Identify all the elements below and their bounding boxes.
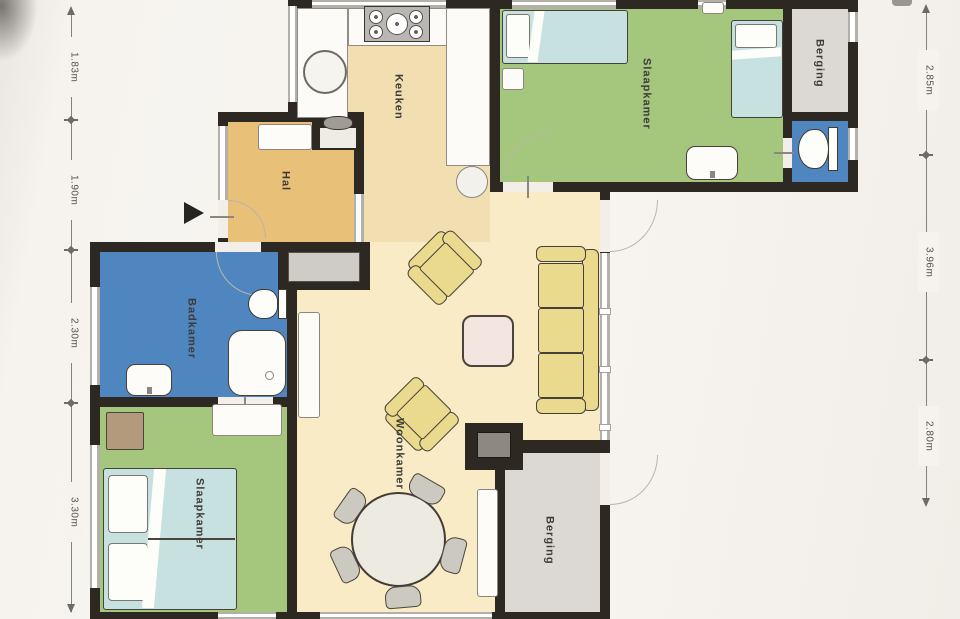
stove-icon [364,6,430,42]
dimension-label: 3.30m [63,482,84,542]
room-label-berging-bottom: Berging [536,510,562,570]
dimension-tick [922,151,930,159]
keuken-left-window [288,6,297,102]
room-label-woonkamer: Woonkamer [386,412,412,496]
slaapkamer-top-window [512,0,616,9]
shower-icon [228,330,286,396]
berging-bottom-door-gap [600,453,610,505]
dimension-arrow-icon [67,604,75,613]
toilet-bowl [248,289,278,319]
badkamer-door-gap [215,242,261,252]
door-arc-terrace [610,200,658,252]
coffee-table [462,315,514,367]
wall-hal-woonkamer [354,112,364,194]
dining-chair [384,584,422,609]
sofa-cushion [538,308,584,353]
door-threshold [527,176,529,198]
stove-burner-icon [409,10,423,24]
wardrobe [212,404,282,436]
entrance-arrow-icon [184,202,204,224]
entrance-door-gap [218,200,228,238]
bedroom-sink-icon [686,146,738,180]
nightstand [702,2,724,14]
dimension-label: 1.90m [63,160,84,220]
window-mullion [599,366,611,373]
stove-burner-icon [386,13,408,35]
toilet-icon [246,288,288,320]
dining-table [351,492,446,587]
dimension-arrow-icon [67,6,75,15]
nightstand [502,68,524,90]
kitchen-counter-right [446,8,490,166]
double-bed [103,468,237,610]
sideboard [298,312,320,418]
dimension-tick [67,399,75,407]
slaapkamer-bottom-window [90,445,100,588]
photo-corner-shadow [0,0,38,62]
wall-woonkamer-left [287,242,297,619]
door-threshold [774,152,794,154]
room-label-keuken: Keuken [385,66,411,128]
floor-plan: Keuken Slaapkamer Berging Hal Badkamer W… [0,0,960,619]
window-mullion [599,308,611,315]
hal-closet [258,124,312,150]
door-arc-berging-bottom [610,455,658,505]
badkamer-window [90,287,100,385]
kitchen-sink-icon [303,50,347,94]
stove-burner-icon [369,25,383,39]
dimension-label: 1.83m [63,37,84,97]
stove-burner-icon [369,10,383,24]
kitchen-stool [456,166,488,198]
bed [502,10,628,64]
faucet-icon [710,171,715,178]
dimension-arrow-icon [922,498,930,507]
dimension-tick [922,356,930,364]
slaapkamer-bottom-window-south [218,612,276,619]
dimension-label: 2.30m [63,303,84,363]
toilet-tank [278,289,287,319]
wardrobe-kast [288,252,360,282]
woonkamer-window-south [320,612,492,619]
fireplace-inner [477,432,511,458]
dimension-label: 2.80m [918,406,939,466]
berging-top-window [848,12,858,42]
toilet-window [848,128,858,160]
wall-badkamer-top [90,242,297,252]
woonkamer-window-east [600,253,610,440]
sofa-arm [536,398,586,414]
hal-woonkamer-passage [354,194,364,242]
sofa-cushion [538,263,584,308]
room-label-slaapkamer-top: Slaapkamer [633,52,659,136]
dimension-label: 3.96m [918,232,939,292]
niche-floor [320,128,356,148]
stove-burner-icon [409,25,423,39]
window-mullion [599,424,611,431]
bed-sheet-fold [732,47,781,59]
floor-plan-photo: { "plan": { "type": "floor-plan", "langu… [0,0,960,619]
toilet-tank [828,127,838,171]
sofa [536,246,600,414]
pillow [108,475,148,533]
woonkamer-floor-upper-right [490,192,600,242]
room-label-badkamer: Badkamer [178,290,204,368]
dimension-label: 2.85m [918,50,939,110]
toilet-icon [798,126,840,172]
wall-keuken-slaapkamer [490,0,500,192]
hal-facade-window [218,126,228,200]
room-label-hal: Hal [272,166,298,196]
boiler-icon [323,116,353,130]
sofa-back [582,249,599,411]
dimension-tick [67,116,75,124]
door-threshold [210,216,234,218]
wall-fireplace-arm [523,440,602,453]
sofa-cushion [538,353,584,398]
sofa-arm [536,246,586,262]
sideboard [477,489,498,597]
pillow [506,14,530,58]
room-label-slaapkamer-bottom: Slaapkamer [186,472,212,556]
dimension-arrow-icon [922,4,930,13]
faucet-icon [147,387,152,394]
pillow [108,543,148,601]
bed [731,20,783,118]
shower-drain [265,371,274,380]
dimension-tick [67,246,75,254]
photo-smudge [892,0,912,6]
wall-berging-toilet [783,112,848,121]
room-label-berging-top: Berging [806,34,832,92]
toilet-bowl [798,129,829,169]
bathroom-sink-icon [126,364,172,396]
terrace-door-gap [600,200,610,252]
nightstand [106,412,144,450]
pillow [735,24,777,48]
